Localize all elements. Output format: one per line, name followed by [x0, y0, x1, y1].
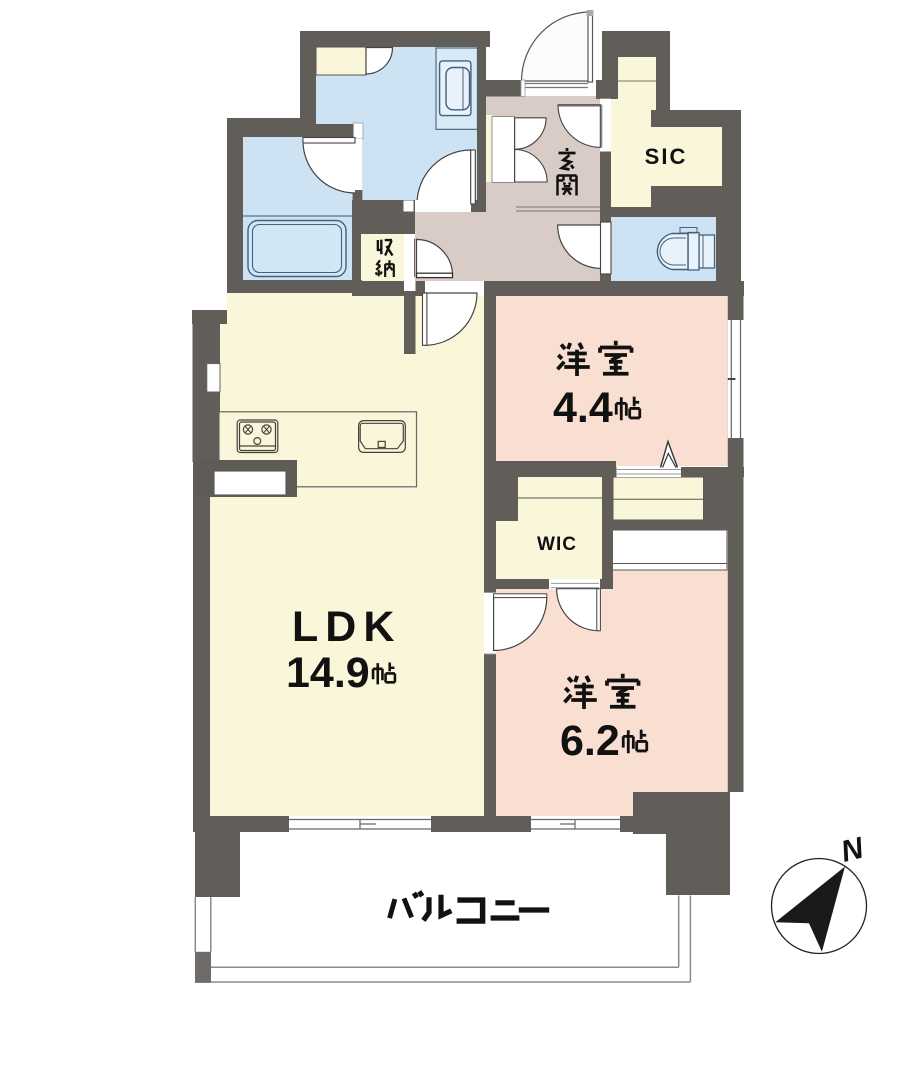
svg-text:WIC: WIC [537, 534, 577, 555]
svg-text:6.2: 6.2 [560, 717, 620, 765]
svg-text:4.4: 4.4 [553, 384, 613, 432]
svg-text:LDK: LDK [292, 603, 401, 651]
svg-text:SIC: SIC [645, 144, 688, 169]
svg-text:14.9: 14.9 [286, 649, 370, 697]
